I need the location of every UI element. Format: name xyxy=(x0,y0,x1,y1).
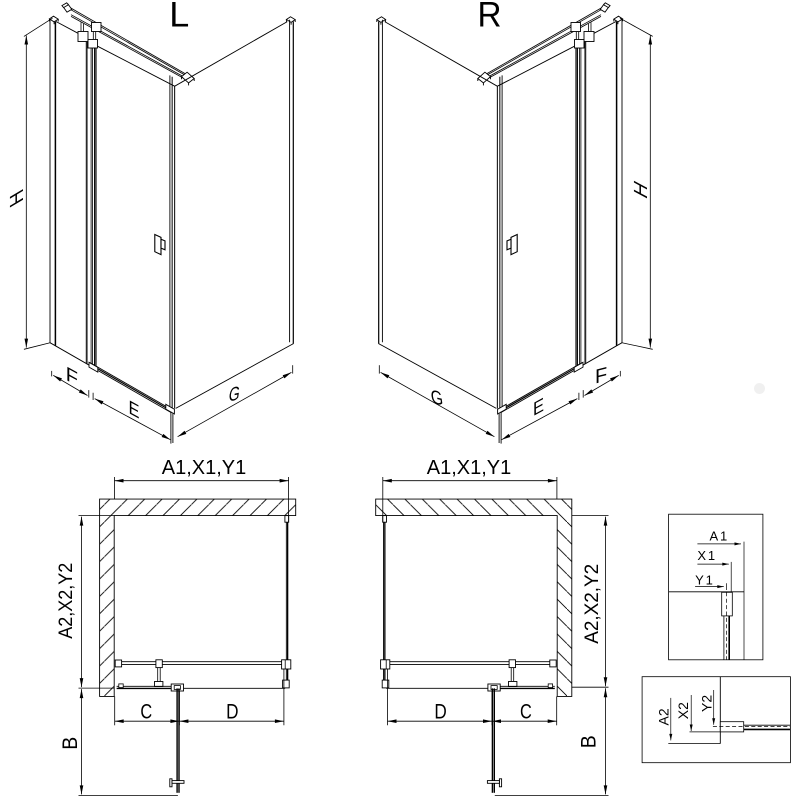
svg-text:R: R xyxy=(478,0,502,34)
svg-text:A1: A1 xyxy=(710,528,730,543)
svg-text:Y1: Y1 xyxy=(695,573,715,588)
svg-text:A2,X2,Y2: A2,X2,Y2 xyxy=(56,563,77,639)
svg-text:L: L xyxy=(169,0,189,34)
svg-text:A1,X1,Y1: A1,X1,Y1 xyxy=(162,457,247,479)
svg-text:B: B xyxy=(578,735,601,748)
svg-text:B: B xyxy=(59,737,82,750)
svg-text:C: C xyxy=(140,700,152,723)
svg-text:A1,X1,Y1: A1,X1,Y1 xyxy=(427,457,512,479)
svg-text:X1: X1 xyxy=(697,548,717,563)
svg-text:A2: A2 xyxy=(656,708,672,725)
svg-text:A2,X2,Y2: A2,X2,Y2 xyxy=(582,564,603,644)
svg-text:D: D xyxy=(434,700,446,723)
svg-text:F: F xyxy=(595,364,607,389)
svg-text:Y2: Y2 xyxy=(698,695,714,712)
svg-text:C: C xyxy=(520,700,532,723)
svg-text:D: D xyxy=(226,700,238,723)
svg-text:X2: X2 xyxy=(675,702,691,719)
